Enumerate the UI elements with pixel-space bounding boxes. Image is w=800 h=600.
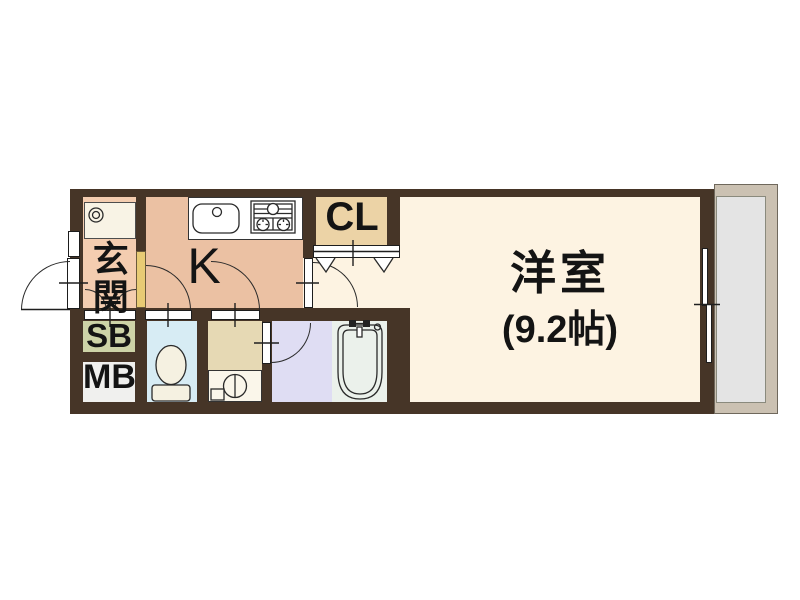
room-toilet	[147, 321, 197, 402]
bathroom-door-leaf	[262, 322, 271, 364]
hall-door-leaf	[304, 258, 313, 308]
washroom-counter	[208, 370, 262, 402]
floor-plan: 玄関 K CL SB MB 洋室 (9.2帖)	[0, 0, 800, 600]
entrance-window	[68, 231, 80, 257]
wall-toilet-washroom	[197, 321, 208, 402]
closet-bifold-band	[313, 245, 400, 258]
bathtub-area	[332, 321, 387, 402]
entrance-door-arc	[21, 261, 70, 310]
entrance-step	[136, 251, 146, 308]
laundry-pan	[84, 202, 136, 239]
wall-sb-toilet	[135, 308, 147, 414]
genkan-label: 玄関	[89, 238, 127, 318]
wall-bath-east	[387, 308, 410, 414]
kitchen-counter	[188, 197, 303, 240]
western-room-label: 洋室	[410, 249, 710, 297]
wall-genkan-kitchen	[136, 197, 146, 251]
kitchen-label: K	[182, 240, 226, 293]
wall-closet-right	[387, 189, 400, 247]
closet-label: CL	[318, 196, 386, 238]
meter-box-label: MB	[83, 360, 135, 396]
toilet-door	[145, 310, 192, 320]
washroom-door	[211, 310, 260, 320]
western-room-size-label: (9.2帖)	[410, 311, 710, 351]
balcony-floor	[716, 196, 766, 403]
shoe-box-label: SB	[83, 319, 135, 354]
